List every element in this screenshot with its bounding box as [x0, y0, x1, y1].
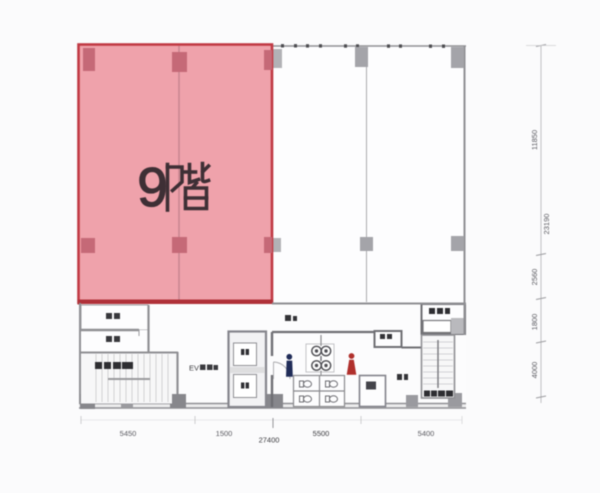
svg-text:5500: 5500 — [313, 429, 330, 438]
svg-text:1500: 1500 — [216, 429, 233, 438]
svg-text:23190: 23190 — [542, 214, 551, 235]
svg-text:5400: 5400 — [418, 429, 435, 438]
svg-text:11850: 11850 — [530, 130, 539, 150]
svg-text:EV: EV — [189, 364, 199, 373]
svg-text:2560: 2560 — [530, 269, 539, 286]
svg-text:5450: 5450 — [120, 429, 137, 438]
svg-text:27400: 27400 — [259, 436, 280, 445]
svg-text:1800: 1800 — [530, 314, 539, 331]
svg-text:9: 9 — [137, 156, 168, 218]
svg-text:4000: 4000 — [530, 362, 539, 379]
